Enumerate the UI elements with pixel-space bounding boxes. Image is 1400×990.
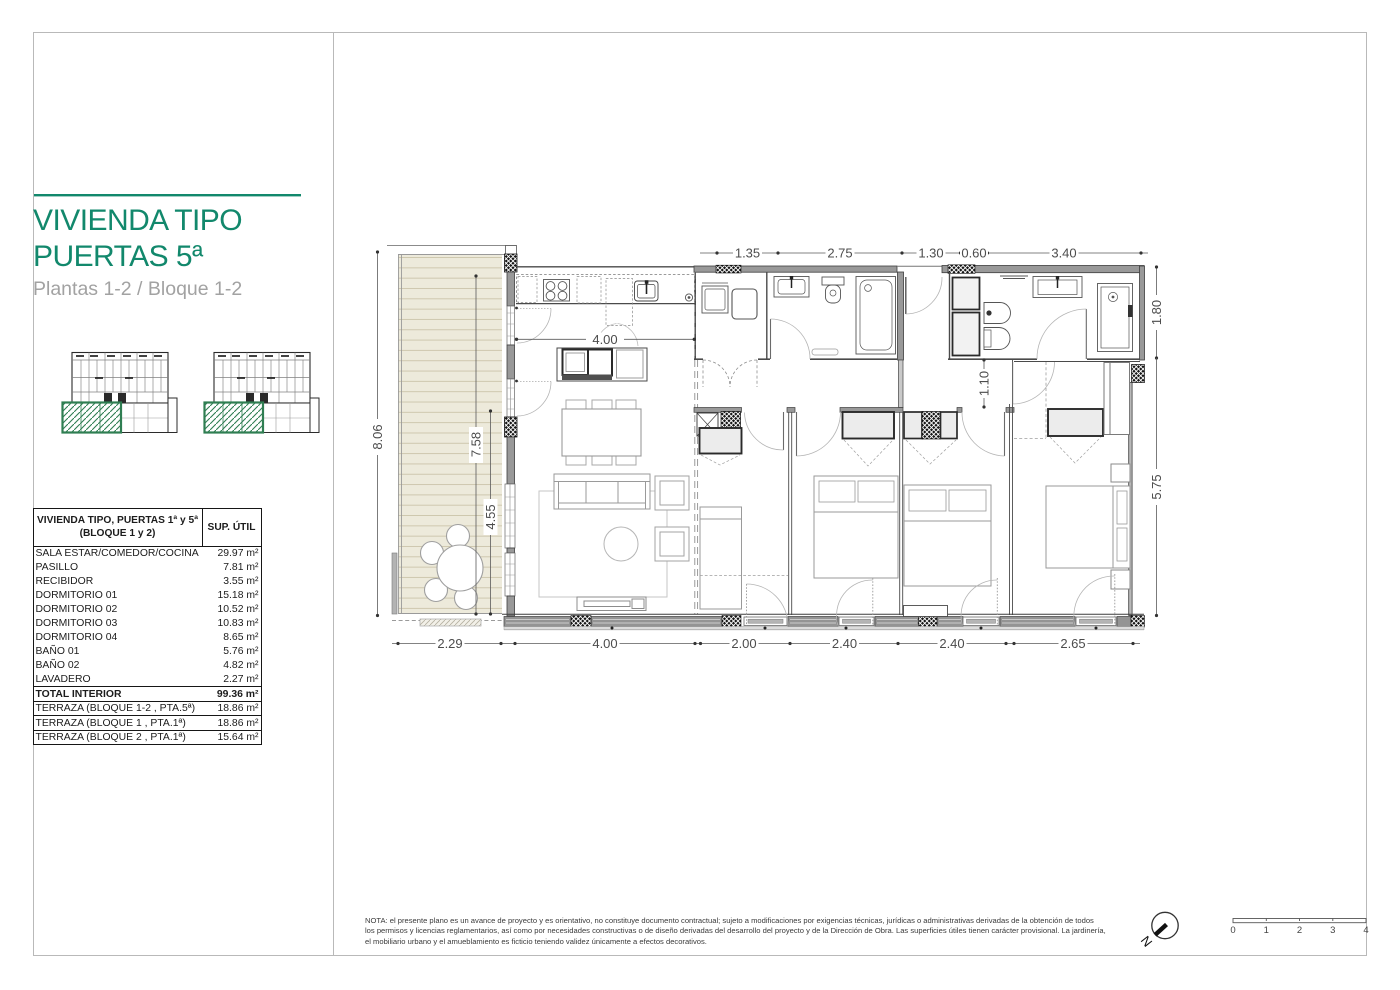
svg-text:N: N [1138, 933, 1156, 950]
svg-text:1.30: 1.30 [918, 246, 943, 261]
svg-text:3: 3 [1330, 925, 1335, 936]
svg-text:2.29: 2.29 [437, 636, 462, 651]
svg-text:2.00: 2.00 [731, 636, 756, 651]
svg-text:0: 0 [1230, 925, 1235, 936]
svg-text:5.75: 5.75 [1149, 474, 1164, 499]
svg-text:3.40: 3.40 [1051, 246, 1076, 261]
svg-text:4.00: 4.00 [592, 636, 617, 651]
svg-text:4.00: 4.00 [592, 332, 617, 347]
svg-text:2.75: 2.75 [827, 246, 852, 261]
svg-text:2.40: 2.40 [939, 636, 964, 651]
svg-text:4: 4 [1363, 925, 1368, 936]
svg-text:2.65: 2.65 [1060, 636, 1085, 651]
svg-text:0.60: 0.60 [961, 246, 986, 261]
svg-text:2.40: 2.40 [832, 636, 857, 651]
svg-text:8.06: 8.06 [370, 424, 385, 449]
svg-text:1.10: 1.10 [977, 371, 992, 396]
svg-text:7.58: 7.58 [469, 432, 484, 457]
svg-text:1.80: 1.80 [1149, 300, 1164, 325]
svg-text:1: 1 [1264, 925, 1269, 936]
svg-text:4.55: 4.55 [483, 504, 498, 529]
svg-text:1.35: 1.35 [735, 246, 760, 261]
svg-text:2: 2 [1297, 925, 1302, 936]
